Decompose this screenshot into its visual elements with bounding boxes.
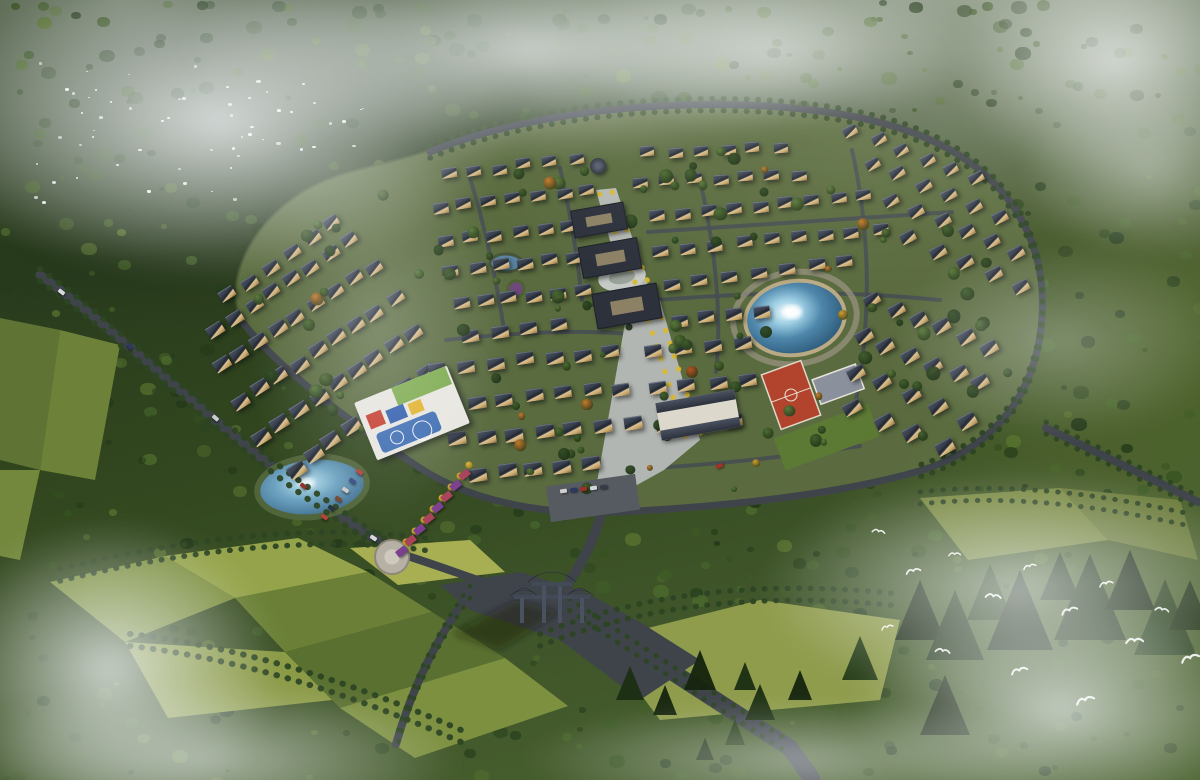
villa-house [466,165,482,177]
bird-icon [313,102,316,104]
roadside-tree-line [1046,422,1198,496]
park-tree [303,319,315,331]
villa-house [486,357,504,371]
egret-glyph [1154,604,1170,614]
park-tree [728,153,741,166]
villa-house [690,274,707,287]
pine-tree [734,662,756,690]
villa-house [703,339,721,353]
egret-glyph [1009,664,1029,678]
autumn-tree [544,177,557,190]
pine-tree [616,666,644,700]
villa-house [648,209,664,221]
park-tree [711,236,722,247]
villa-house [447,431,467,446]
park-tree [760,326,772,338]
villa-house [433,201,449,214]
egret-wings [1126,638,1143,643]
villa-house [569,153,585,165]
bird-icon [248,97,251,99]
villa-house [738,170,753,181]
bird-icon [256,80,260,83]
bird-icon [302,83,305,85]
egret-glyph [1074,692,1096,707]
villa-house [720,270,737,283]
kindergarten-red-block [366,410,386,430]
bird-icon [129,107,132,109]
park-tree [913,381,923,391]
bird-icon [211,191,213,192]
egret-wings [1011,666,1028,674]
villa-house [554,384,573,399]
park-tree [551,290,564,303]
park-tree [433,244,444,255]
bird-icon [81,112,83,114]
pine-tree [653,685,677,715]
villa-house [517,257,534,270]
gate-lower-beam [514,595,590,599]
villa-house [726,202,742,214]
bird-icon [352,145,356,148]
park-tree [684,169,697,182]
gate-pillar [558,586,562,623]
park-tree [486,253,494,261]
villa-house [744,142,759,153]
egret-wings [935,648,950,654]
bird-icon [167,117,170,119]
aerial-rendering-canvas [0,0,1200,780]
egret-wings [1023,563,1036,569]
villa-house [694,145,709,156]
bird-icon [232,147,235,149]
villa-house [545,351,563,365]
park-tree [336,391,344,399]
egret-glyph [1059,603,1079,617]
park-tree [332,224,341,233]
egret-wings [872,529,885,534]
bird-icon [194,65,197,67]
villa-house [725,307,742,320]
gate-pillar [520,598,524,623]
bird-icon [277,109,281,112]
park-tree [324,246,335,257]
gate-left-roof [510,588,538,596]
villa-house [763,232,779,244]
villa-house [498,462,518,477]
park-tree [562,362,571,371]
egret-wings [1181,653,1199,662]
park-tree [555,428,564,437]
autumn-tree [515,440,527,452]
park-tree [763,427,774,438]
park-tree [760,188,769,197]
lake-sun-reflection [782,305,802,319]
park-tree [981,258,992,269]
villa-house [541,252,558,265]
park-tree [253,294,264,305]
bird-icon [182,97,186,99]
villa-house [750,266,767,279]
bird-icon [36,163,38,164]
park-tree [734,292,741,299]
egret-wings [1155,606,1169,612]
egret-bird-icon [984,584,1003,605]
bird-icon [233,198,237,201]
villa-house [803,194,819,206]
bird-icon [95,89,97,90]
park-tree [319,373,333,387]
kindergarten-yellow-block [407,399,425,416]
egret-wings [986,593,1002,598]
pine-tree [1169,580,1200,630]
courtyard [595,250,626,267]
kindergarten-blue-block [385,403,408,424]
egret-glyph [1125,635,1144,645]
egret-bird-icon [1125,630,1145,650]
villa-house [774,143,789,154]
villa-house [644,344,662,358]
villa-house [855,189,871,201]
egret-glyph [948,550,961,557]
gate-pillar [580,598,584,623]
villa-house [710,375,729,389]
villa-house [753,201,769,213]
park-tree [659,169,673,183]
villa-house [697,309,714,322]
park-tree [640,185,648,193]
park-tree [580,166,590,176]
egret-glyph [934,646,951,657]
villa-house [563,420,582,435]
bird-icon [72,92,75,94]
villa-house [843,226,859,238]
villa-house [652,245,669,258]
gate-pillar [542,586,546,623]
ginkgo-tree [466,462,473,469]
park-tree [899,379,909,389]
egret-wings [949,552,961,555]
villa-house [753,306,770,319]
pine-tree [920,675,970,735]
pine-tree [684,650,716,690]
villa-house [612,382,631,397]
villa-house [623,415,642,430]
villa-house [513,225,530,238]
park-tree [716,147,726,157]
park-tree [626,324,633,331]
bird-icon [147,190,151,193]
egret-bird-icon [933,639,952,660]
villa-house [675,208,691,220]
park-tree [896,319,904,327]
park-tree [526,468,534,476]
park-tree [577,447,584,454]
villa-house [639,145,654,156]
villa-house [525,290,543,304]
egret-glyph [984,590,1002,601]
park-tree [749,232,758,241]
villa-house [492,164,508,176]
park-tree [660,392,669,401]
villa-house [791,171,806,182]
villa-house [454,296,472,310]
villa-house [538,222,555,235]
park-tree [327,404,339,416]
bird-icon [248,133,252,136]
park-tree [672,237,679,244]
park-tree [975,320,987,332]
egret-glyph [1179,650,1200,666]
pavilion [590,158,606,174]
villa-house [516,351,534,365]
villa-house [680,242,697,254]
bird-icon [99,116,103,119]
park-tree [1003,368,1013,378]
gate-archway [502,560,602,626]
park-tree [492,374,502,384]
villa-house [831,192,847,204]
villa-house [491,325,509,339]
park-tree [882,228,891,237]
egret-glyph [880,622,894,632]
egret-wings [881,624,893,630]
autumn-tree [518,413,526,421]
bird-icon [34,196,38,199]
park-tree [558,448,570,460]
villa-house [467,396,486,411]
villa-house [480,194,496,206]
gate-center-roof [528,572,576,582]
villa-house [668,147,683,158]
bird-icon [342,120,346,123]
bird-icon [88,97,90,98]
pine-tree [842,636,878,680]
egret-glyph [871,527,886,537]
park-tree [320,288,329,297]
villa-house [664,279,681,292]
egret-bird-icon [948,542,962,561]
pine-tree [788,670,812,700]
villa-house [809,258,826,271]
entrance-gate [502,560,602,626]
villa-house [477,429,497,444]
playground-circle [388,429,406,447]
villa-house [495,393,514,408]
villa-house [478,293,496,307]
bird-icon [76,177,78,179]
villa-house [778,263,795,276]
bird-icon [250,126,254,128]
park-tree [512,402,520,410]
egret-glyph [905,565,922,576]
courtyard [585,213,612,228]
villa-house [836,255,853,268]
egret-wings [1099,580,1113,586]
egret-wings [1061,606,1078,615]
villa-house [581,455,601,470]
park-tree [714,361,724,371]
park-tree [867,303,877,313]
villa-house [486,229,503,242]
egret-glyph [1022,561,1037,572]
gate-upper-beam [532,582,572,586]
courtyard [610,297,644,316]
autumn-tree [857,218,869,230]
villa-house [455,197,471,209]
pine-tree [725,719,745,745]
park-tree [378,190,389,201]
autumn-tree [581,399,593,411]
villa-house [818,229,834,241]
park-tree [414,269,424,279]
gate-right-roof [566,588,594,596]
autumn-tree [752,460,760,468]
villa-house [583,382,602,397]
bird-icon [116,164,118,166]
park-tree [574,434,582,442]
egret-wings [906,568,921,574]
bird-icon [161,120,164,122]
pine-tree [696,738,714,760]
villa-house [791,229,807,241]
villa-house [574,349,592,363]
villa-house [677,377,696,391]
villa-house [536,423,555,438]
park-tree [731,486,737,492]
bird-icon [300,148,303,150]
egret-wings [1076,695,1094,704]
farm-plot [0,470,40,560]
park-tree [309,384,323,398]
egret-glyph [1098,578,1114,589]
bird-icon [237,155,240,157]
villa-house [526,387,545,402]
park-tree [791,198,804,211]
villa-house [714,174,729,185]
villa-house [578,183,594,195]
bird-icon [290,111,293,113]
